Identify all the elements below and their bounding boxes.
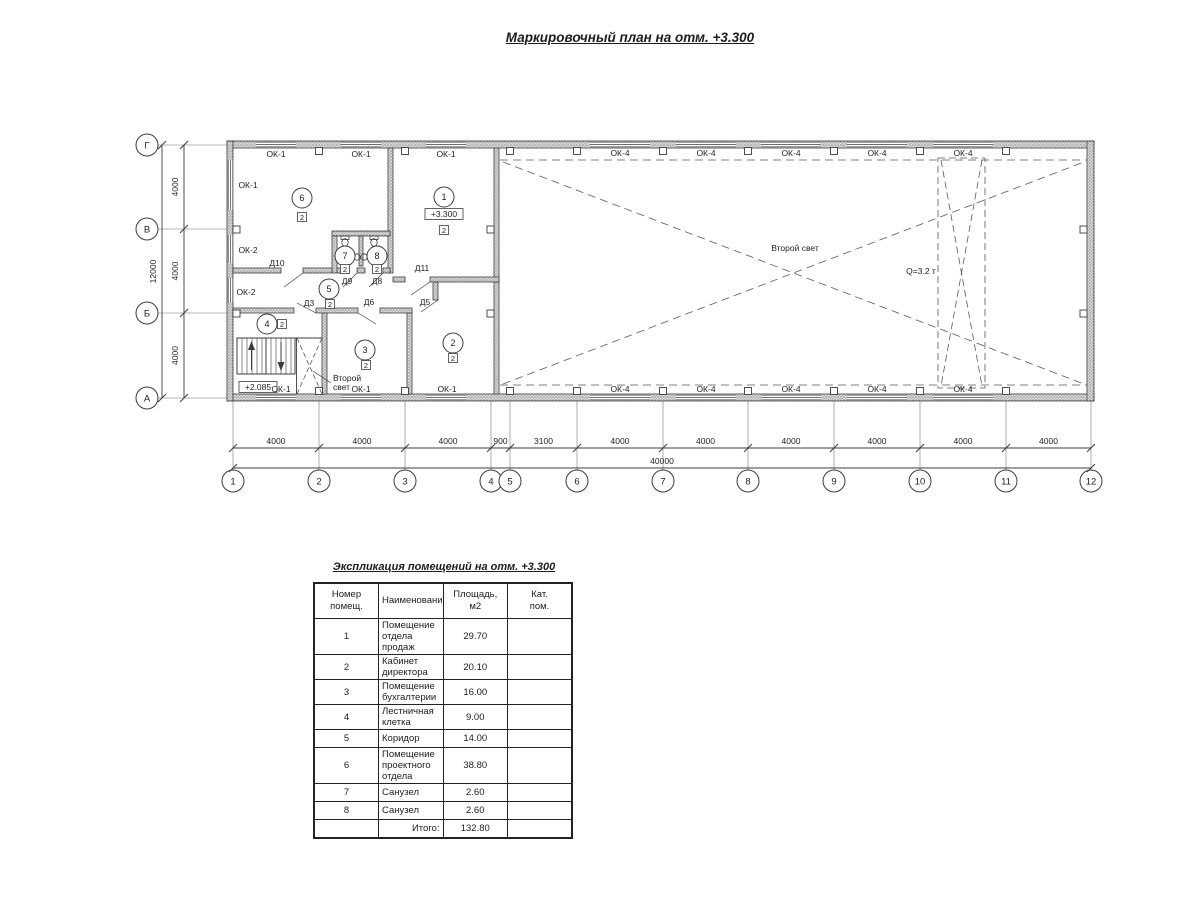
room-category: 2 [280, 320, 284, 329]
table-cell: Санузел [379, 784, 444, 802]
window-mark-label: ОК-1 [271, 384, 290, 394]
table-cell [508, 820, 573, 839]
door-mark-label: Д10 [269, 258, 284, 268]
table-row: 5Коридор14.00 [314, 730, 572, 748]
door-swing [358, 313, 376, 324]
window-mark-label: ОК-2 [236, 287, 255, 297]
axis-bubble-label: 5 [507, 476, 512, 487]
window-mark-label: ОК-4 [867, 148, 886, 158]
dim-label: 4000 [170, 346, 180, 365]
window-mark-label: ОК-1 [437, 384, 456, 394]
table-cell: Помещение отдела продаж [379, 619, 444, 655]
table-cell: Итого: [379, 820, 444, 839]
door-mark-label: Д3 [304, 298, 315, 308]
table-row: 6Помещение проектного отдела38.80 [314, 748, 572, 784]
wall [1087, 141, 1094, 401]
room-number: 4 [264, 319, 269, 329]
table-cell: 7 [314, 784, 379, 802]
elevation-value: +2.085 [245, 382, 272, 392]
room-category: 2 [328, 300, 332, 309]
column-pier [507, 388, 514, 395]
window-mark-label: ОК-4 [696, 384, 715, 394]
column-pier [487, 310, 494, 317]
dim-total-label: 40000 [650, 456, 674, 466]
column-pier [574, 388, 581, 395]
wall [332, 231, 390, 236]
drawing-sheet: Маркировочный план на отм. +3.300 123456… [0, 0, 1200, 900]
axis-bubble-label: 4 [488, 476, 493, 487]
table-cell [508, 730, 573, 748]
column-pier [402, 388, 409, 395]
column-pier [507, 148, 514, 155]
window-mark-label: ОК-4 [610, 148, 629, 158]
dim-label: 4000 [439, 436, 458, 446]
table-cell: Помещение проектного отдела [379, 748, 444, 784]
dim-label: 4000 [611, 436, 630, 446]
axis-bubble-label: 12 [1086, 476, 1097, 487]
room-number: 2 [450, 338, 455, 348]
table-cell: 1 [314, 619, 379, 655]
axis-bubble-label: А [144, 393, 151, 404]
column-pier [233, 226, 240, 233]
window-mark-label: ОК-4 [953, 148, 972, 158]
column-pier [316, 148, 323, 155]
note-text: свет [333, 382, 350, 392]
table-cell: 2.60 [443, 802, 508, 820]
table-row: 8Санузел2.60 [314, 802, 572, 820]
table-header: Площадь, м2 [443, 583, 508, 619]
axis-bubble-label: 6 [574, 476, 579, 487]
table-cell [508, 784, 573, 802]
column-pier [831, 148, 838, 155]
door-mark-label: Д6 [364, 297, 375, 307]
dim-label: 3100 [534, 436, 553, 446]
elevation-value: +3.300 [431, 209, 458, 219]
axis-bubble-label: В [144, 224, 150, 235]
window-mark-label: ОК-1 [351, 384, 370, 394]
table-cell: Коридор [379, 730, 444, 748]
window-mark-label: ОК-1 [436, 149, 455, 159]
floor-plan: 1234567891011124000400040009003100400040… [0, 0, 1200, 900]
table-cell: 38.80 [443, 748, 508, 784]
table-cell [508, 705, 573, 730]
column-pier [660, 148, 667, 155]
column-pier [1003, 148, 1010, 155]
table-cell: 2 [314, 655, 379, 680]
room-category: 2 [451, 354, 455, 363]
column-pier [402, 148, 409, 155]
axis-bubble-label: 9 [831, 476, 836, 487]
window-mark-label: ОК-1 [351, 149, 370, 159]
axis-bubble-label: Г [144, 140, 149, 151]
window-mark-label: ОК-4 [696, 148, 715, 158]
table-cell: Помещение бухгалтерии [379, 680, 444, 705]
axis-bubble-label: 3 [402, 476, 407, 487]
column-pier [745, 148, 752, 155]
door-swing [411, 282, 430, 295]
window-mark-label: ОК-2 [238, 245, 257, 255]
door-mark-label: Д8 [372, 276, 383, 286]
wall [388, 148, 393, 273]
wall [303, 268, 332, 273]
wall [316, 308, 358, 313]
table-cell: 132.80 [443, 820, 508, 839]
room-category: 2 [375, 265, 379, 274]
room-category: 2 [442, 226, 446, 235]
column-pier [1003, 388, 1010, 395]
table-row: 1Помещение отдела продаж29.70 [314, 619, 572, 655]
room-number: 7 [342, 251, 347, 261]
table-header: Номер помещ. [314, 583, 379, 619]
table-header: Наименование [379, 583, 444, 619]
axis-bubble-label: Б [144, 308, 150, 319]
dim-label: 4000 [170, 177, 180, 196]
walls-layer [227, 141, 1094, 401]
column-pier [917, 388, 924, 395]
dim-label: 4000 [696, 436, 715, 446]
column-pier [660, 388, 667, 395]
room-number: 3 [362, 345, 367, 355]
dim-label: 4000 [954, 436, 973, 446]
door-mark-label: Д11 [415, 263, 430, 273]
table-cell [508, 802, 573, 820]
table-cell: 6 [314, 748, 379, 784]
table-cell [508, 655, 573, 680]
table-cell: 29.70 [443, 619, 508, 655]
room-number: 8 [374, 251, 379, 261]
table-cell: 5 [314, 730, 379, 748]
table-cell: 9.00 [443, 705, 508, 730]
table-cell: Лестничная клетка [379, 705, 444, 730]
axis-bubble-label: 7 [660, 476, 665, 487]
axis-bubble-label: 1 [230, 476, 235, 487]
table-total-row: Итого:132.80 [314, 820, 572, 839]
table-header: Кат. пом. [508, 583, 573, 619]
wall [359, 236, 363, 266]
table-cell: 14.00 [443, 730, 508, 748]
table-cell [314, 820, 379, 839]
wall [383, 268, 390, 273]
axis-bubble-label: 11 [1001, 476, 1011, 487]
column-pier [574, 148, 581, 155]
table-row: 7Санузел2.60 [314, 784, 572, 802]
axis-bubble-label: 10 [915, 476, 926, 487]
note-text: Q=3.2 т [906, 266, 936, 276]
note-text: Второй свет [771, 243, 819, 253]
column-pier [233, 310, 240, 317]
window-mark-label: ОК-4 [781, 148, 800, 158]
table-cell: 8 [314, 802, 379, 820]
explication-title: Экспликация помещений на отм. +3.300 [313, 561, 575, 573]
table-row: 4Лестничная клетка9.00 [314, 705, 572, 730]
table-cell: Кабинет директора [379, 655, 444, 680]
column-pier [1080, 310, 1087, 317]
table-cell: 3 [314, 680, 379, 705]
column-pier [831, 388, 838, 395]
table-cell: 4 [314, 705, 379, 730]
room-category: 2 [343, 265, 347, 274]
column-pier [745, 388, 752, 395]
window-mark-label: ОК-1 [266, 149, 285, 159]
room-category: 2 [300, 213, 304, 222]
table-cell: 16.00 [443, 680, 508, 705]
wall [433, 282, 438, 300]
door-mark-label: Д9 [342, 276, 353, 286]
door-mark-label: Д5 [420, 297, 431, 307]
dim-label: 4000 [782, 436, 801, 446]
wall [322, 313, 327, 394]
wall [494, 148, 499, 394]
window-mark-label: ОК-1 [238, 180, 257, 190]
wall [233, 308, 294, 313]
door-swing [284, 273, 303, 287]
explication-table: Номер помещ.НаименованиеПлощадь, м2Кат. … [313, 582, 573, 839]
explication-block: Экспликация помещений на отм. +3.300 Ном… [313, 561, 575, 839]
room-number: 5 [326, 284, 331, 294]
stairs-up-arrow [248, 341, 255, 350]
dim-label: 4000 [170, 261, 180, 280]
table-cell [508, 619, 573, 655]
wall [380, 308, 412, 313]
wall [430, 277, 499, 282]
dim-label: 4000 [353, 436, 372, 446]
window-mark-label: ОК-4 [953, 384, 972, 394]
dim-label: 4000 [267, 436, 286, 446]
axis-bubble-label: 8 [745, 476, 750, 487]
table-cell [508, 680, 573, 705]
dim-label: 900 [493, 436, 507, 446]
stairs-down-arrow [278, 362, 285, 371]
table-cell: 2.60 [443, 784, 508, 802]
dim-total-label: 12000 [148, 259, 158, 283]
table-cell: 20.10 [443, 655, 508, 680]
room-category: 2 [364, 361, 368, 370]
column-pier [917, 148, 924, 155]
window-mark-label: ОК-4 [867, 384, 886, 394]
room-number: 1 [441, 192, 446, 202]
wall [357, 268, 365, 273]
wall [233, 268, 281, 273]
table-row: 3Помещение бухгалтерии16.00 [314, 680, 572, 705]
column-pier [487, 226, 494, 233]
wall [407, 313, 412, 394]
column-pier [1080, 226, 1087, 233]
window-mark-label: ОК-4 [781, 384, 800, 394]
window-mark-label: ОК-4 [610, 384, 629, 394]
table-row: 2Кабинет директора20.10 [314, 655, 572, 680]
wall [393, 277, 405, 282]
room-number: 6 [299, 193, 304, 203]
axis-bubble-label: 2 [316, 476, 321, 487]
labels-layer: 1234567891011124000400040009003100400040… [144, 140, 1096, 487]
table-cell: Санузел [379, 802, 444, 820]
table-cell [508, 748, 573, 784]
dim-label: 4000 [868, 436, 887, 446]
dim-label: 4000 [1039, 436, 1058, 446]
